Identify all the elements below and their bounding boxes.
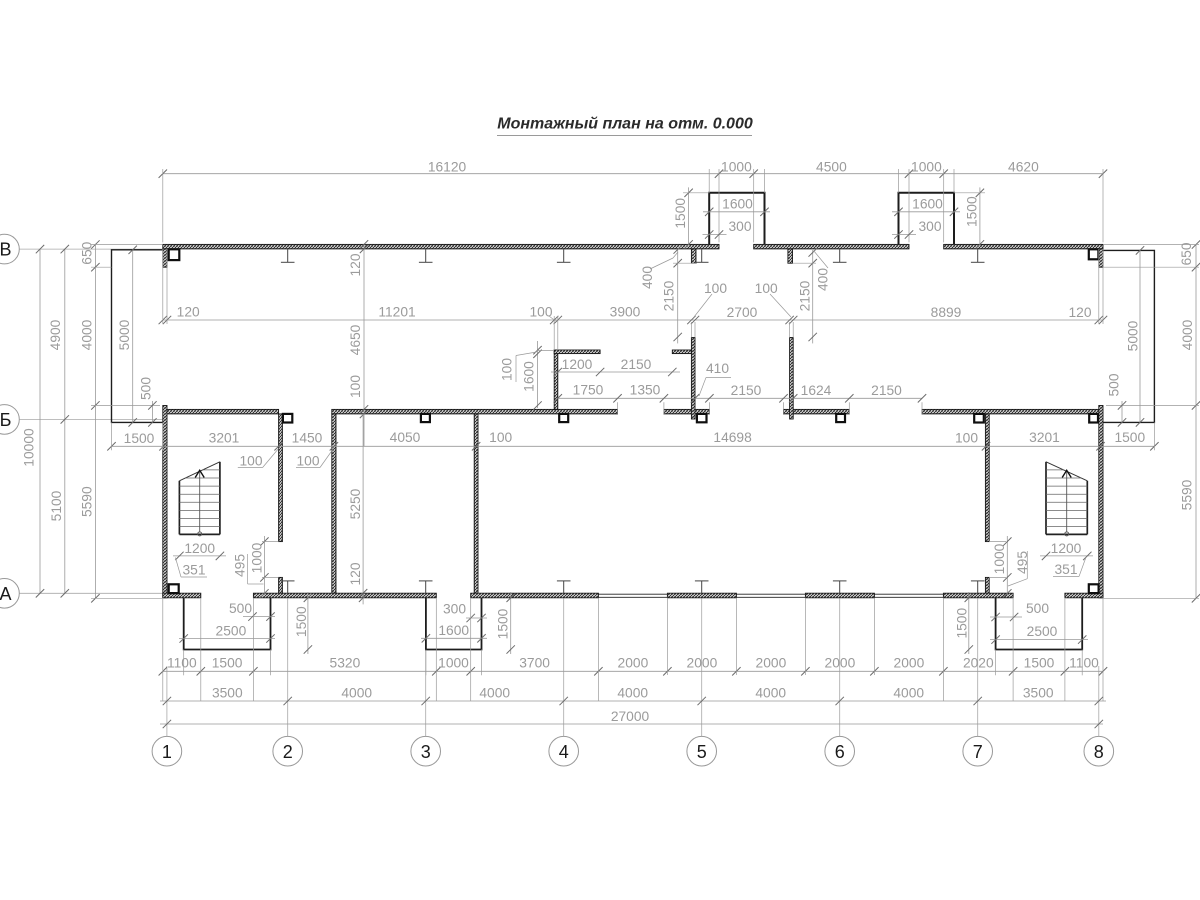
svg-text:1600: 1600: [722, 197, 753, 212]
svg-text:1450: 1450: [292, 431, 323, 446]
svg-text:Монтажный план на отм. 0.000: Монтажный план на отм. 0.000: [497, 116, 753, 133]
svg-text:1500: 1500: [965, 196, 980, 227]
svg-text:1500: 1500: [954, 608, 969, 639]
svg-text:Б: Б: [0, 410, 11, 430]
svg-text:400: 400: [816, 268, 831, 291]
svg-text:5250: 5250: [348, 488, 363, 519]
svg-text:100: 100: [239, 454, 262, 469]
svg-text:1000: 1000: [911, 160, 942, 175]
svg-text:300: 300: [918, 219, 941, 234]
svg-text:300: 300: [728, 219, 751, 234]
svg-text:8899: 8899: [931, 305, 962, 320]
svg-text:7: 7: [973, 742, 983, 762]
svg-text:1000: 1000: [721, 160, 752, 175]
svg-text:4000: 4000: [479, 686, 510, 701]
svg-text:1200: 1200: [1051, 541, 1082, 556]
svg-text:120: 120: [1068, 305, 1091, 320]
svg-text:2500: 2500: [1027, 624, 1058, 639]
svg-text:500: 500: [139, 377, 154, 400]
svg-text:2150: 2150: [731, 383, 762, 398]
svg-text:650: 650: [1179, 242, 1194, 265]
svg-text:4000: 4000: [80, 319, 95, 350]
svg-text:495: 495: [1015, 551, 1030, 574]
svg-text:1600: 1600: [522, 361, 537, 392]
svg-text:4500: 4500: [816, 160, 847, 175]
svg-text:100: 100: [348, 375, 363, 398]
svg-text:2020: 2020: [963, 656, 994, 671]
svg-text:410: 410: [706, 361, 729, 376]
svg-text:5100: 5100: [49, 490, 64, 521]
svg-text:5320: 5320: [330, 656, 361, 671]
svg-text:3900: 3900: [610, 305, 641, 320]
svg-text:100: 100: [296, 454, 319, 469]
svg-text:1000: 1000: [992, 543, 1007, 574]
svg-text:5000: 5000: [117, 319, 132, 350]
svg-text:5590: 5590: [80, 486, 95, 517]
svg-text:2150: 2150: [621, 357, 652, 372]
svg-text:3201: 3201: [1029, 430, 1060, 445]
svg-text:4: 4: [559, 742, 569, 762]
svg-text:11201: 11201: [378, 305, 415, 320]
svg-text:100: 100: [489, 430, 512, 445]
svg-text:14698: 14698: [713, 430, 752, 445]
svg-text:16120: 16120: [428, 160, 467, 175]
svg-text:1000: 1000: [438, 656, 469, 671]
svg-text:3700: 3700: [519, 656, 550, 671]
svg-text:4900: 4900: [48, 319, 63, 350]
svg-text:4000: 4000: [617, 686, 648, 701]
svg-text:1600: 1600: [438, 623, 469, 638]
svg-text:4650: 4650: [348, 324, 363, 355]
svg-text:2000: 2000: [618, 656, 649, 671]
svg-text:1500: 1500: [124, 431, 155, 446]
svg-text:2700: 2700: [727, 305, 758, 320]
svg-text:2150: 2150: [797, 280, 812, 311]
svg-text:1624: 1624: [801, 383, 832, 398]
svg-text:В: В: [0, 240, 12, 260]
svg-text:6: 6: [835, 742, 845, 762]
svg-text:2000: 2000: [756, 656, 787, 671]
svg-text:2: 2: [283, 742, 293, 762]
svg-text:351: 351: [182, 563, 205, 578]
svg-text:1500: 1500: [1114, 430, 1145, 445]
svg-text:400: 400: [640, 266, 655, 289]
svg-text:4000: 4000: [1180, 319, 1195, 350]
svg-text:1200: 1200: [562, 357, 593, 372]
svg-text:4620: 4620: [1008, 160, 1039, 175]
svg-text:5: 5: [697, 742, 707, 762]
svg-text:100: 100: [529, 305, 552, 320]
svg-text:А: А: [0, 584, 12, 604]
svg-text:300: 300: [443, 602, 466, 617]
svg-text:120: 120: [348, 253, 363, 276]
svg-text:3500: 3500: [1023, 686, 1054, 701]
svg-text:500: 500: [229, 601, 252, 616]
svg-text:2000: 2000: [825, 656, 856, 671]
svg-text:1500: 1500: [673, 198, 688, 229]
svg-text:120: 120: [177, 305, 200, 320]
svg-text:3500: 3500: [212, 686, 243, 701]
svg-text:10000: 10000: [22, 428, 37, 467]
svg-text:1100: 1100: [1069, 656, 1099, 671]
svg-text:1500: 1500: [496, 608, 511, 639]
svg-text:100: 100: [955, 431, 978, 446]
svg-text:4000: 4000: [341, 686, 372, 701]
svg-text:2150: 2150: [871, 383, 902, 398]
svg-text:500: 500: [1107, 373, 1122, 396]
svg-text:1500: 1500: [212, 656, 243, 671]
svg-text:1100: 1100: [167, 656, 197, 671]
svg-text:1500: 1500: [1024, 656, 1055, 671]
svg-text:1200: 1200: [184, 541, 215, 556]
svg-text:8: 8: [1094, 742, 1104, 762]
svg-text:1350: 1350: [630, 383, 661, 398]
svg-text:1750: 1750: [573, 383, 604, 398]
svg-text:351: 351: [1054, 562, 1077, 577]
svg-text:2500: 2500: [216, 624, 247, 639]
svg-text:1600: 1600: [912, 197, 943, 212]
svg-text:2000: 2000: [687, 656, 718, 671]
svg-text:5590: 5590: [1180, 479, 1195, 510]
svg-text:4050: 4050: [390, 430, 421, 445]
svg-text:3: 3: [421, 742, 431, 762]
svg-text:2150: 2150: [661, 280, 676, 311]
svg-text:500: 500: [1026, 601, 1049, 616]
svg-text:4000: 4000: [893, 686, 924, 701]
svg-text:5000: 5000: [1126, 320, 1141, 351]
svg-text:120: 120: [348, 562, 363, 585]
svg-text:1500: 1500: [294, 606, 309, 637]
svg-text:650: 650: [80, 241, 95, 264]
svg-text:100: 100: [755, 281, 778, 296]
svg-text:495: 495: [233, 554, 248, 577]
svg-text:1: 1: [162, 742, 172, 762]
svg-text:3201: 3201: [209, 431, 240, 446]
svg-text:2000: 2000: [894, 656, 925, 671]
svg-text:100: 100: [500, 358, 515, 381]
svg-text:4000: 4000: [755, 686, 786, 701]
svg-text:100: 100: [704, 281, 727, 296]
svg-text:1000: 1000: [250, 542, 265, 573]
svg-text:27000: 27000: [611, 709, 650, 724]
